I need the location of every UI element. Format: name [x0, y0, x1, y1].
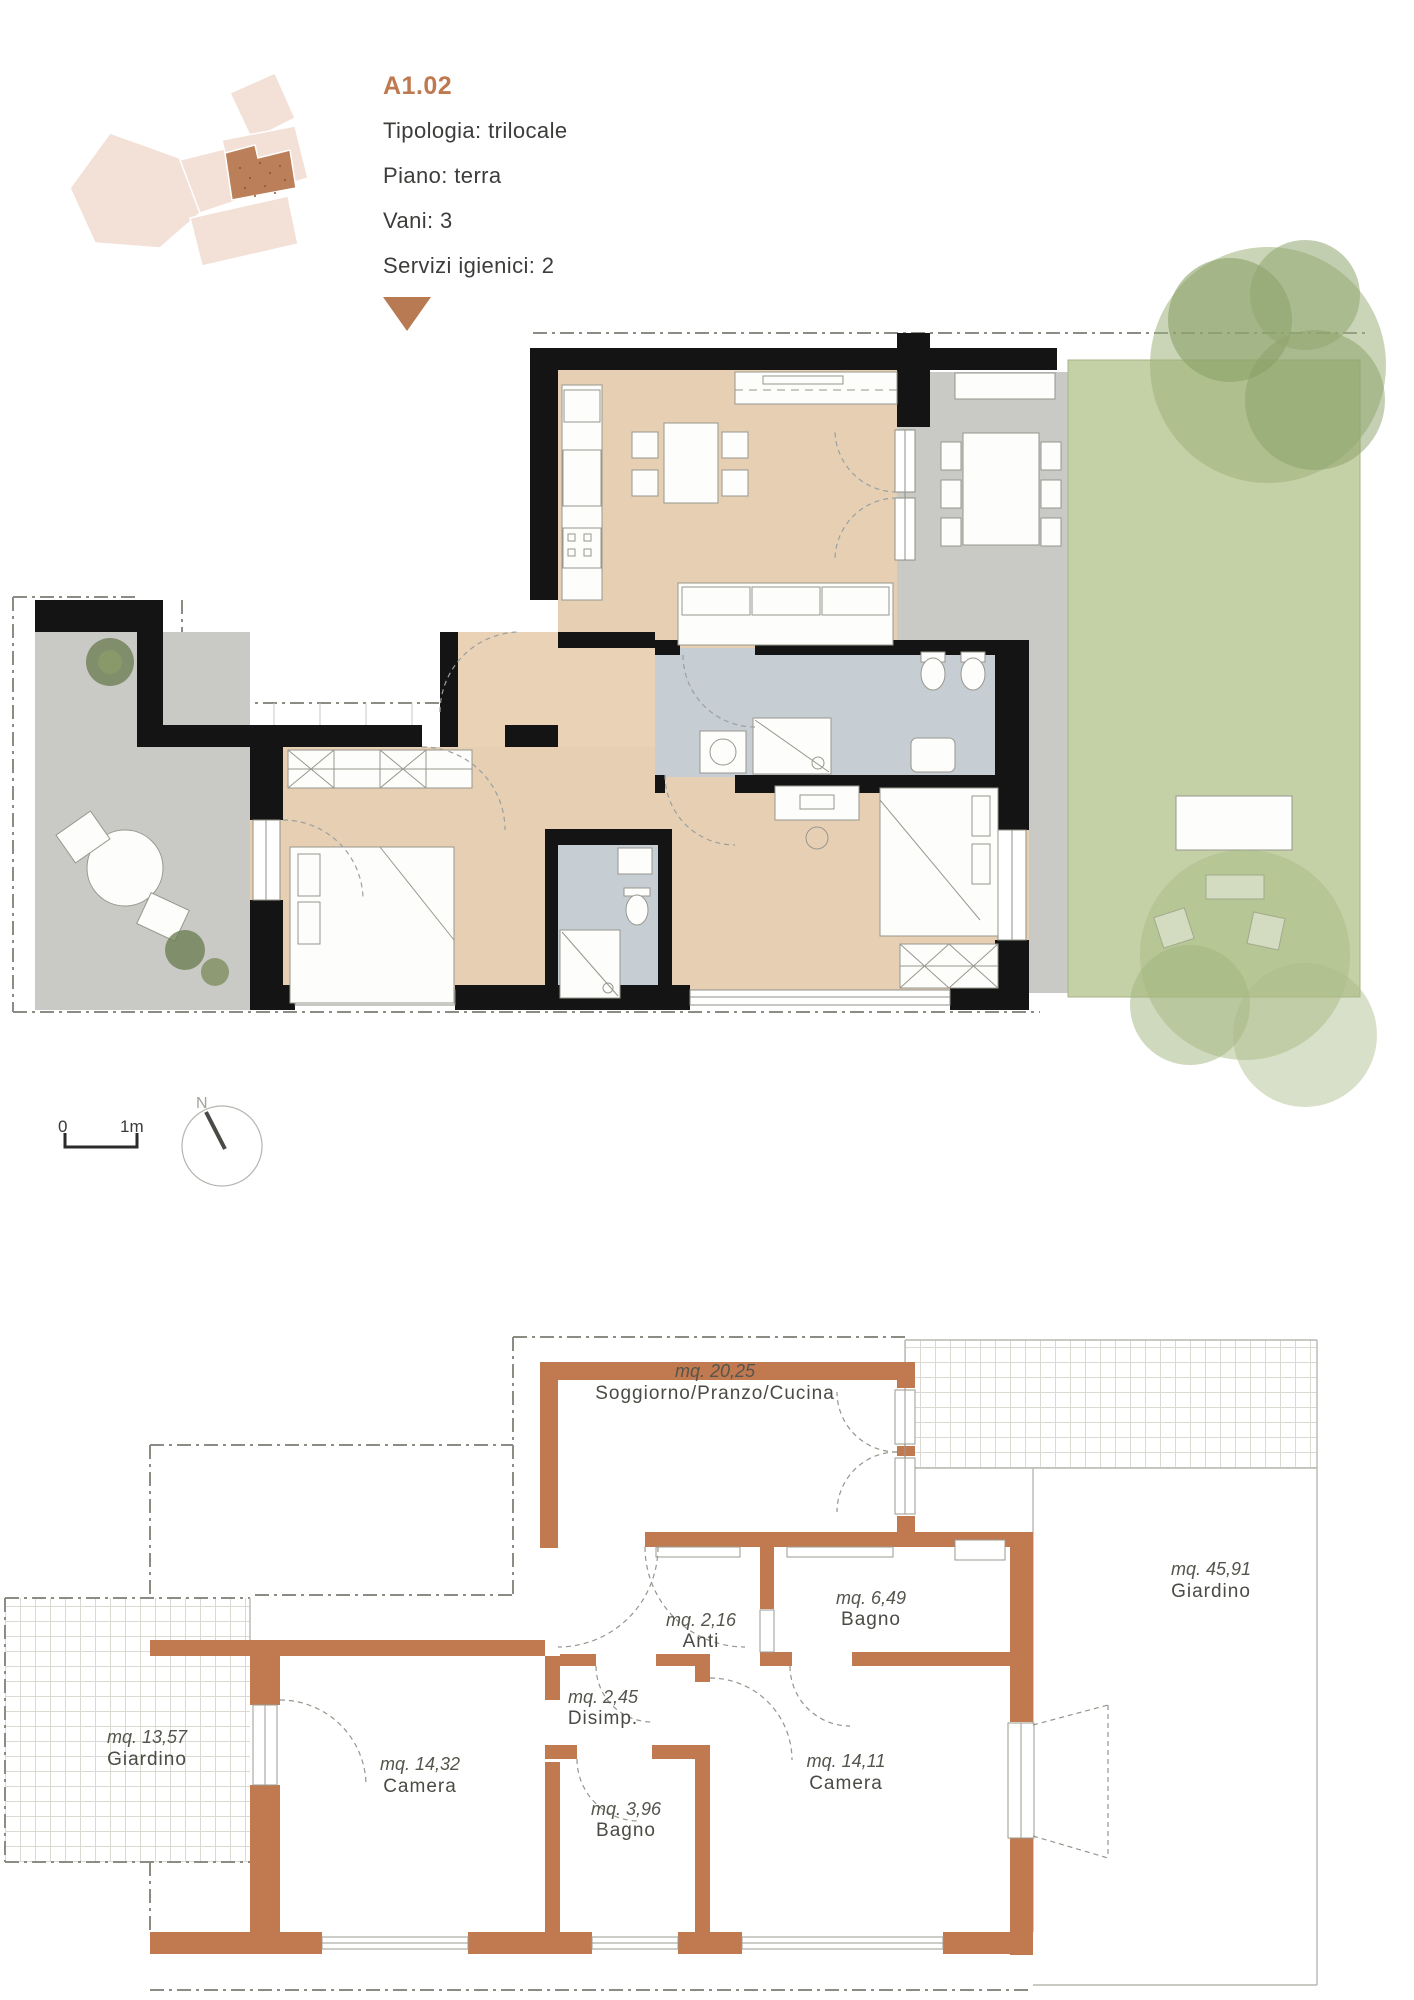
soggiorno-area: mq. 20,25 [675, 1361, 756, 1381]
compass-needle [206, 1112, 225, 1149]
disimpegno-name: Disimp. [568, 1708, 638, 1729]
dining-table [664, 423, 718, 503]
toilet [921, 658, 945, 690]
scale-1m-label: 1m [120, 1117, 144, 1136]
camera-left-name: Camera [383, 1776, 457, 1797]
bagno-main-name: Bagno [841, 1609, 901, 1630]
anti-area: mq. 2,16 [666, 1610, 737, 1630]
schematic-plan: mq. 20,25 Soggiorno/Pranzo/Cucina mq. 45… [5, 1337, 1317, 1990]
washing-machine [700, 731, 746, 773]
rendered-plan [13, 240, 1386, 1107]
anti-name: Anti [683, 1631, 720, 1652]
walls-orange [150, 1362, 1033, 1955]
floor-plan-sheet: A1.02 Tipologia: trilocale Piano: terra … [0, 0, 1414, 2000]
disimpegno-area: mq. 2,45 [568, 1687, 639, 1707]
north-label: N [196, 1095, 208, 1112]
bagno-small-area: mq. 3,96 [591, 1799, 662, 1819]
tv [763, 376, 843, 384]
kitchen-sink [563, 450, 601, 506]
garden-sofa [1176, 796, 1292, 850]
toilet-small [626, 895, 648, 925]
giardino-left-area: mq. 13,57 [107, 1727, 188, 1747]
scale-bar: 0 1m [58, 1117, 144, 1147]
giardino-left-name: Giardino [107, 1749, 187, 1770]
north-compass: N [182, 1095, 262, 1186]
camera-right-area: mq. 14,11 [807, 1751, 886, 1771]
soggiorno-name: Soggiorno/Pranzo/Cucina [595, 1383, 835, 1404]
giardino-right-name: Giardino [1171, 1581, 1251, 1602]
plans-canvas: 0 1m N [0, 0, 1414, 2000]
camera-right-name: Camera [809, 1773, 883, 1794]
schematic-windows [253, 1390, 1034, 1949]
giardino-right-area: mq. 45,91 [1171, 1559, 1251, 1579]
bagno-main-area: mq. 6,49 [836, 1588, 906, 1608]
bagno-small-name: Bagno [596, 1820, 656, 1841]
camera-left-area: mq. 14,32 [380, 1754, 460, 1774]
sink-small [618, 848, 652, 874]
bidet [961, 658, 985, 690]
terrace-table [963, 433, 1039, 545]
terrace-bench [955, 373, 1055, 399]
sink-main [911, 738, 955, 772]
room-labels: mq. 20,25 Soggiorno/Pranzo/Cucina mq. 45… [107, 1361, 1251, 1841]
